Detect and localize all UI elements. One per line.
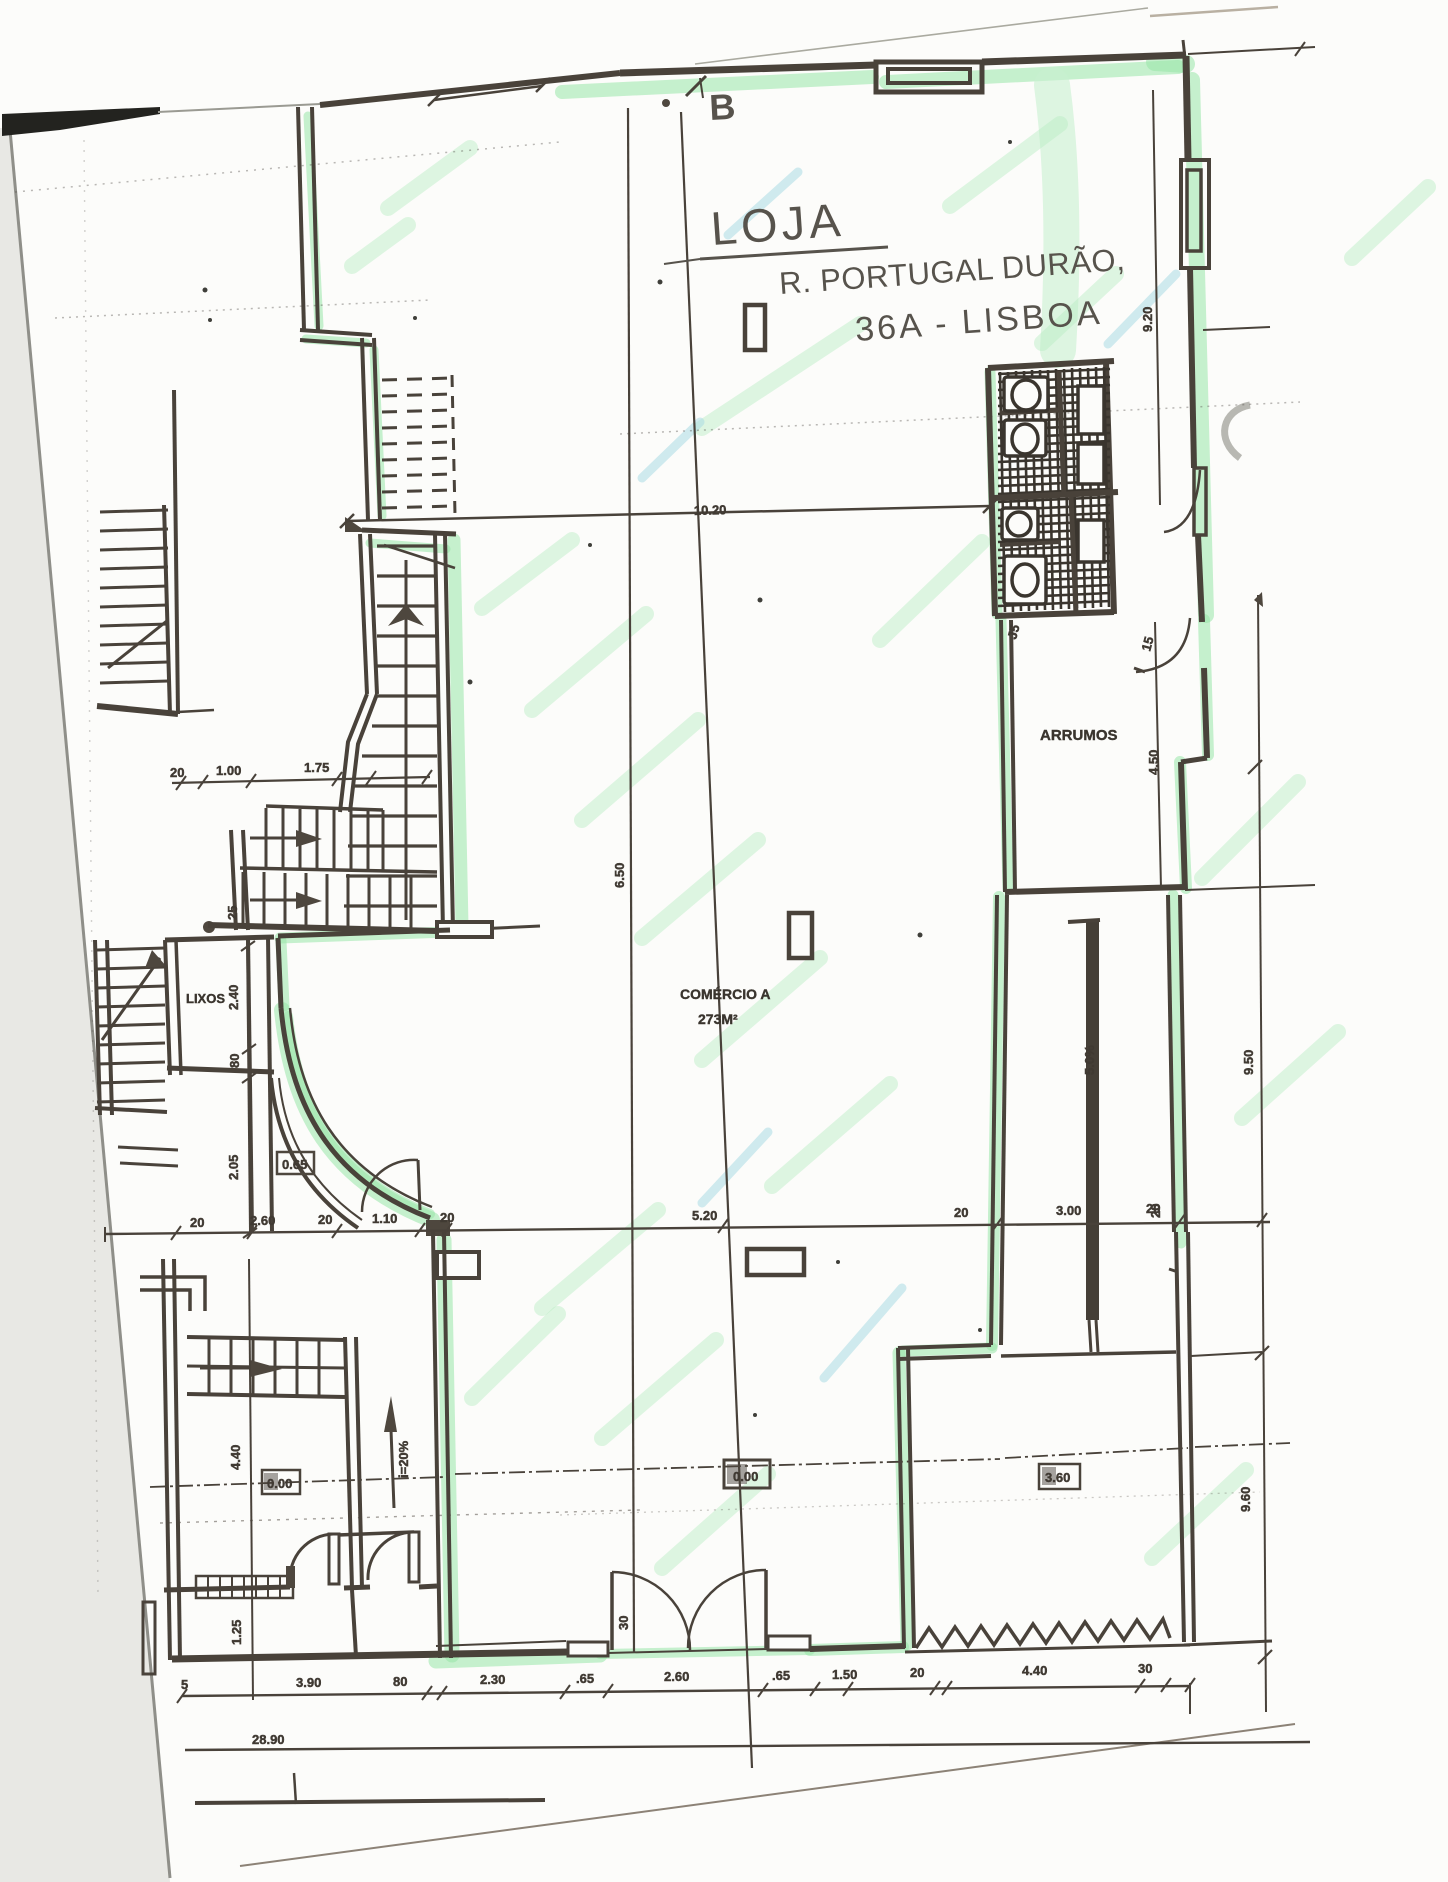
svg-text:3.00: 3.00 (1056, 1203, 1081, 1218)
svg-text:9.20: 9.20 (1140, 307, 1155, 332)
svg-text:2.60: 2.60 (250, 1213, 275, 1228)
svg-text:ARRUMOS: ARRUMOS (1040, 727, 1118, 744)
svg-text:i=20%: i=20% (396, 1440, 411, 1478)
svg-text:.65: .65 (576, 1671, 594, 1686)
svg-text:6.50: 6.50 (612, 863, 627, 888)
svg-text:20: 20 (170, 765, 184, 780)
svg-text:1.50: 1.50 (832, 1667, 857, 1682)
svg-text:3.90: 3.90 (296, 1675, 321, 1690)
svg-text:5.0%: 5.0% (1082, 1045, 1097, 1075)
svg-text:273M²: 273M² (698, 1011, 738, 1027)
svg-text:2.30: 2.30 (480, 1672, 505, 1687)
svg-text:9.60: 9.60 (1238, 1487, 1253, 1512)
svg-text:B: B (708, 86, 736, 128)
svg-text:20: 20 (1148, 1204, 1163, 1218)
svg-text:30: 30 (1138, 1661, 1152, 1676)
svg-text:1.25: 1.25 (229, 1620, 244, 1645)
svg-text:0.00: 0.00 (267, 1476, 292, 1491)
svg-text:LOJA: LOJA (709, 193, 846, 255)
svg-text:30: 30 (616, 1616, 631, 1630)
svg-text:20: 20 (440, 1210, 454, 1225)
svg-text:25: 25 (225, 906, 240, 920)
svg-text:20: 20 (190, 1215, 204, 1230)
svg-text:1.75: 1.75 (304, 760, 329, 775)
svg-text:28.90: 28.90 (252, 1732, 285, 1747)
svg-text:9.50: 9.50 (1241, 1050, 1256, 1075)
svg-text:20: 20 (318, 1212, 332, 1227)
svg-text:2.05: 2.05 (226, 1155, 241, 1180)
svg-text:20: 20 (910, 1665, 924, 1680)
svg-text:.65: .65 (772, 1668, 790, 1683)
svg-text:10.20: 10.20 (694, 502, 727, 518)
svg-text:2.40: 2.40 (226, 985, 241, 1010)
svg-text:4.40: 4.40 (228, 1445, 243, 1470)
svg-text:5: 5 (181, 1677, 188, 1692)
svg-text:0.00: 0.00 (733, 1469, 758, 1484)
svg-text:80: 80 (227, 1054, 242, 1068)
svg-text:1.00: 1.00 (216, 763, 241, 778)
svg-text:20: 20 (954, 1205, 968, 1220)
svg-text:80: 80 (393, 1674, 407, 1689)
svg-text:4.40: 4.40 (1022, 1663, 1047, 1678)
svg-text:1.10: 1.10 (372, 1211, 397, 1226)
svg-text:0.65: 0.65 (282, 1157, 307, 1172)
svg-text:5.20: 5.20 (692, 1208, 717, 1223)
svg-text:4.50: 4.50 (1146, 750, 1161, 775)
svg-text:2.60: 2.60 (664, 1669, 689, 1684)
svg-text:3.60: 3.60 (1045, 1470, 1070, 1485)
svg-text:COMÉRCIO A: COMÉRCIO A (680, 986, 770, 1002)
svg-text:LIXOS: LIXOS (186, 991, 225, 1006)
